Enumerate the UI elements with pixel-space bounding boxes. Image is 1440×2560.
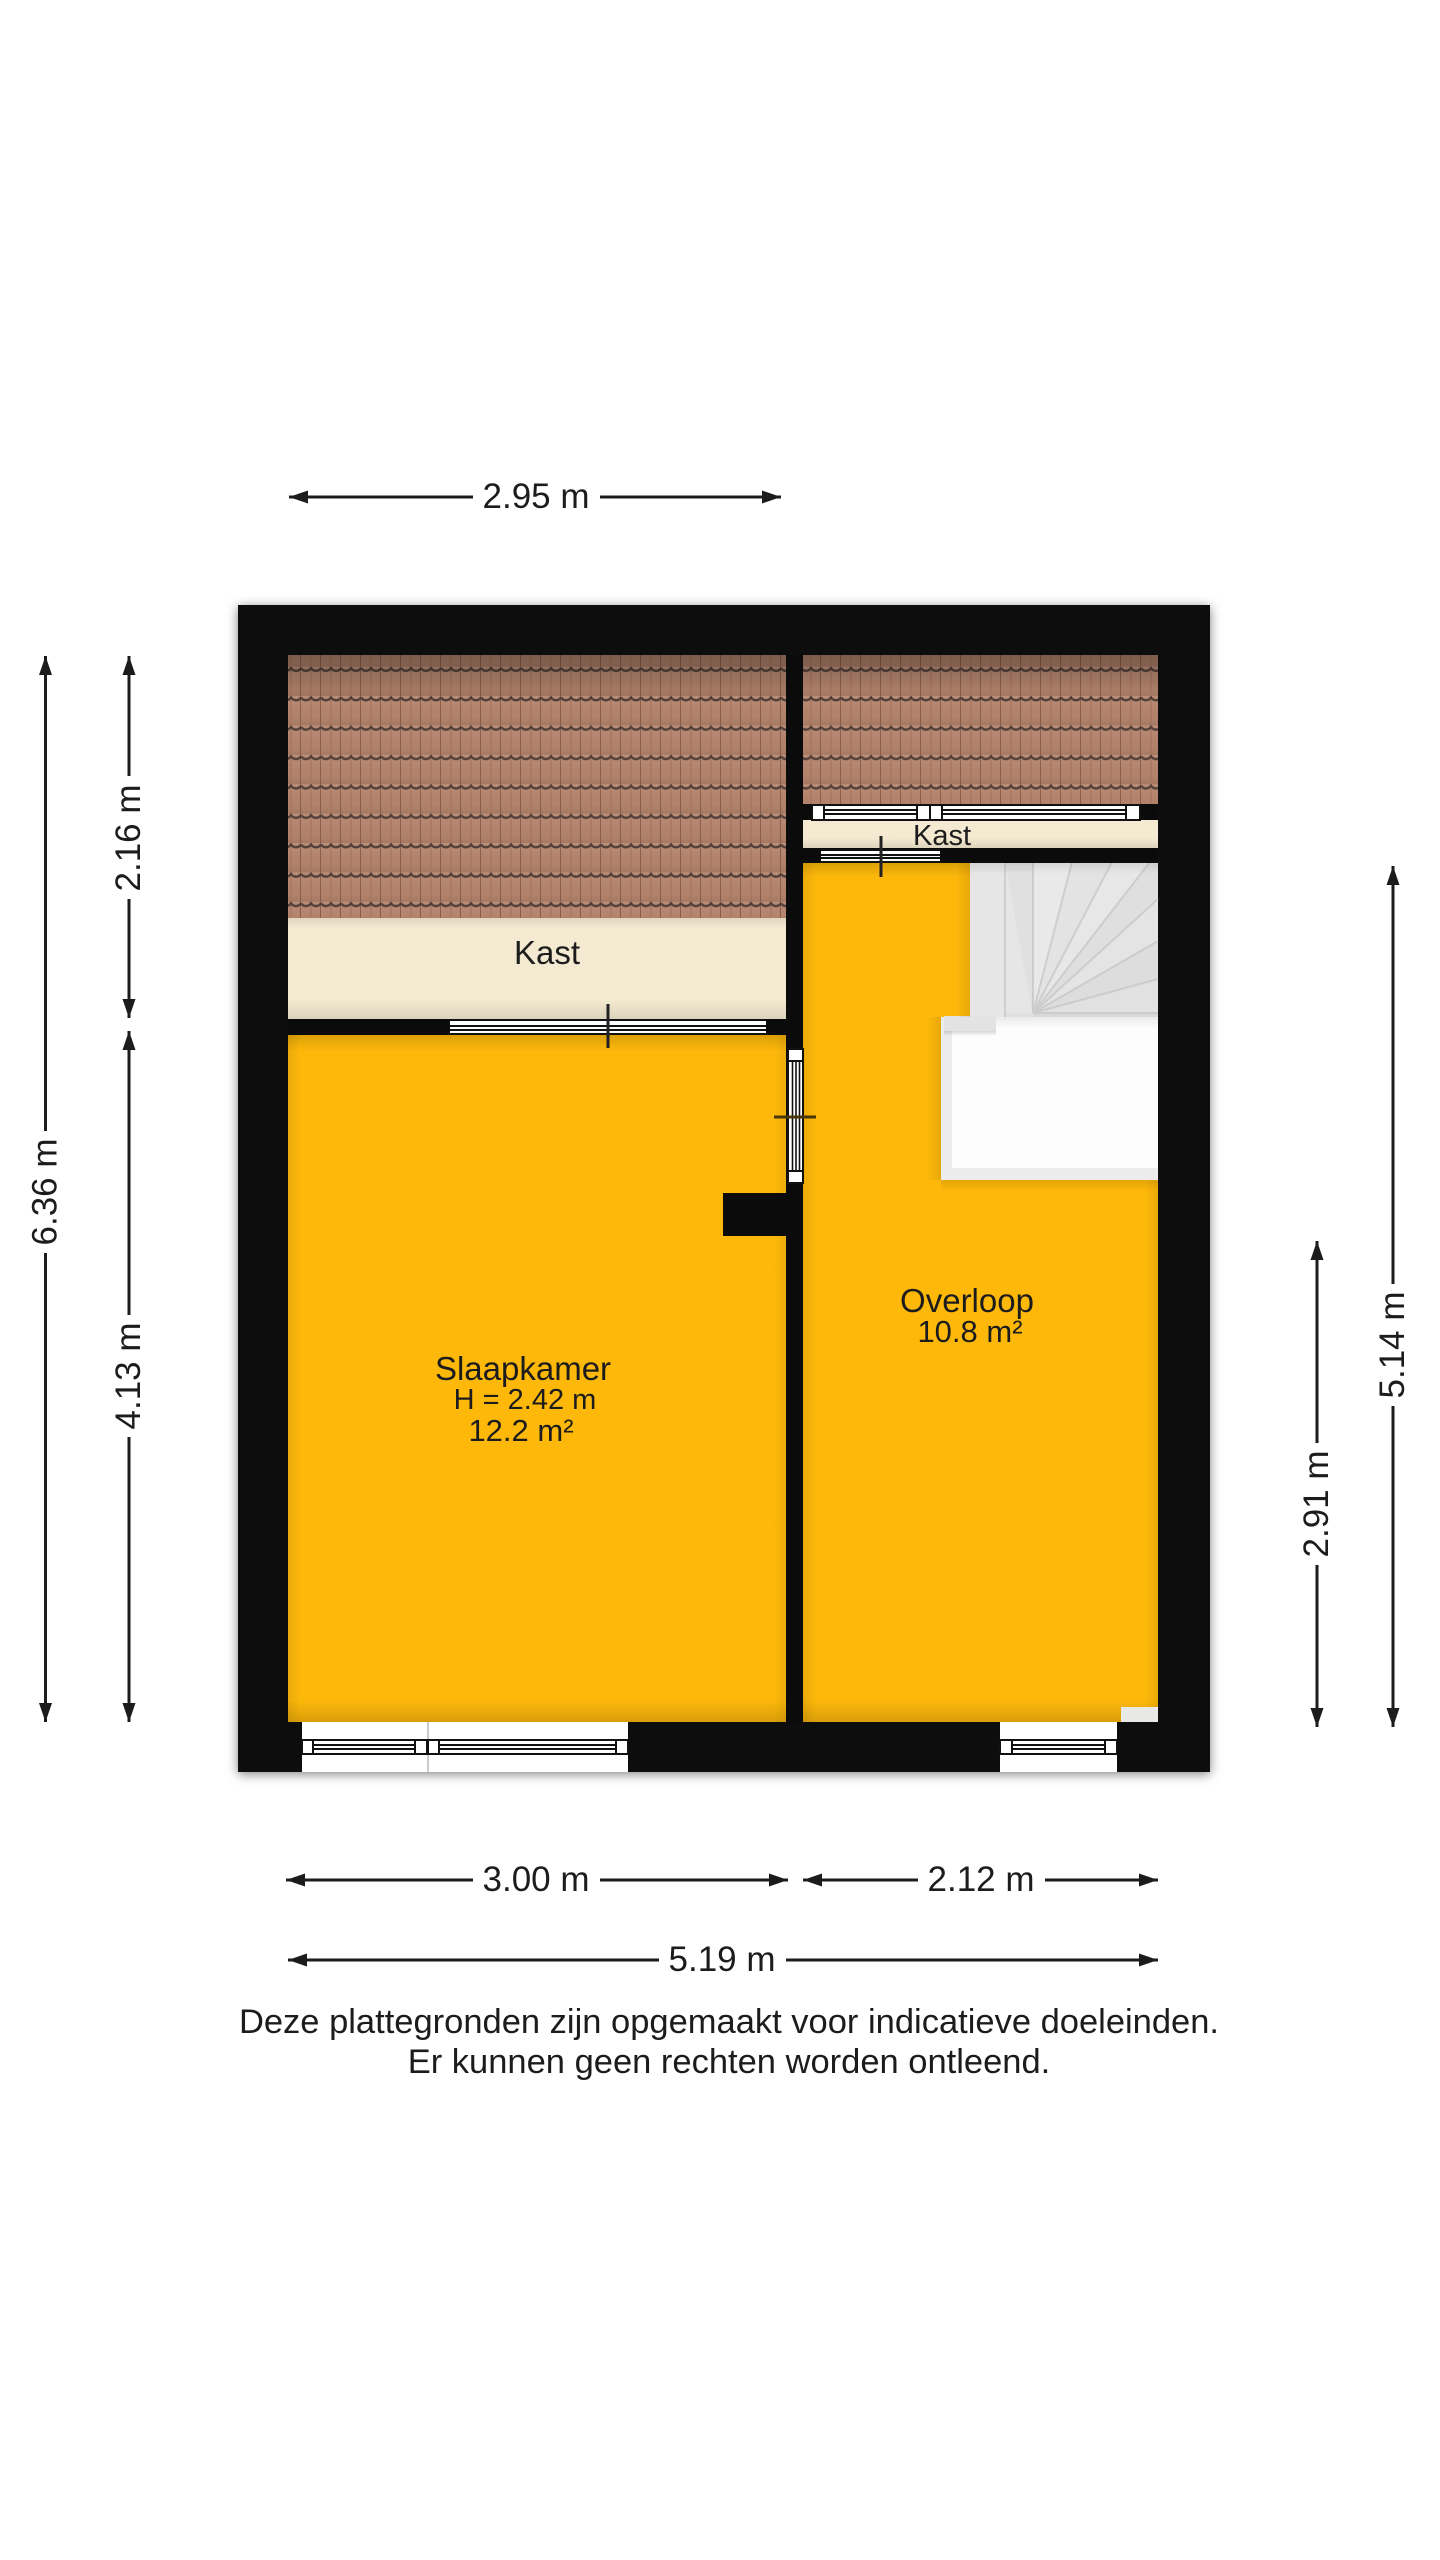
svg-text:Slaapkamer: Slaapkamer: [435, 1350, 611, 1387]
svg-text:Kast: Kast: [514, 934, 580, 971]
svg-text:5.14 m: 5.14 m: [1373, 1292, 1412, 1399]
svg-text:2.95 m: 2.95 m: [483, 477, 590, 516]
svg-text:3.00 m: 3.00 m: [483, 1860, 590, 1899]
svg-text:2.91 m: 2.91 m: [1297, 1451, 1336, 1558]
svg-text:6.36 m: 6.36 m: [26, 1139, 65, 1246]
svg-text:10.8 m²: 10.8 m²: [917, 1314, 1022, 1349]
svg-text:2.16 m: 2.16 m: [109, 785, 148, 892]
svg-text:5.19 m: 5.19 m: [669, 1940, 776, 1979]
svg-text:H = 2.42 m: H = 2.42 m: [454, 1384, 597, 1416]
svg-text:2.12 m: 2.12 m: [928, 1860, 1035, 1899]
svg-text:4.13 m: 4.13 m: [109, 1323, 148, 1430]
svg-text:Er kunnen geen rechten worden: Er kunnen geen rechten worden ontleend.: [408, 2043, 1051, 2081]
svg-text:12.2 m²: 12.2 m²: [468, 1413, 573, 1448]
svg-text:Deze plattegronden zijn opgema: Deze plattegronden zijn opgemaakt voor i…: [239, 2003, 1219, 2041]
svg-text:Kast: Kast: [913, 820, 971, 852]
